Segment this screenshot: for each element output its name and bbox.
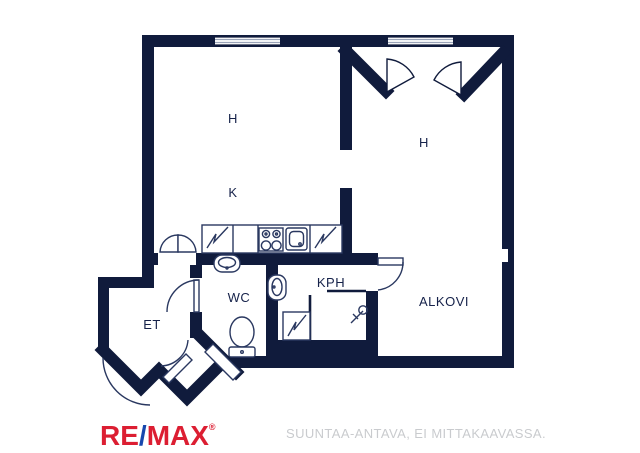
wall-entrance-zigzag [103, 350, 222, 398]
room-label-alkovi: ALKOVI [419, 294, 469, 309]
floor-plan-drawing: H K H WC KPH ALKOVI ET RE/MAX® SUUNTAA-A… [0, 0, 640, 453]
door-swing-arc-icon [167, 280, 199, 312]
wall-bottom [222, 356, 514, 368]
kph-sink-icon [268, 275, 286, 300]
toilet-icon [229, 317, 255, 357]
shower-drain-icon [351, 306, 367, 323]
wall-left [142, 35, 154, 280]
room-label-kph: KPH [317, 275, 345, 290]
logo-max: MAX [147, 420, 210, 451]
disclaimer-text: SUUNTAA-ANTAVA, EI MITTAKAAVASSA. [286, 426, 546, 441]
room-label-et: ET [143, 317, 161, 332]
logo-re: RE [100, 420, 139, 451]
corner-door-fan-icon [387, 59, 414, 92]
wall-niche [502, 249, 508, 262]
kitchen-counter [202, 225, 342, 253]
room-label-h-right: H [419, 135, 429, 150]
wall-top [142, 35, 514, 47]
wall-k-et-stub [142, 253, 158, 265]
bifold-door-icon [160, 235, 196, 252]
room-label-k: K [228, 185, 237, 200]
registered-mark-icon: ® [209, 422, 216, 432]
room-labels: H K H WC KPH ALKOVI ET [143, 111, 469, 332]
room-label-h-left: H [228, 111, 238, 126]
corner-door-fan-icon [434, 62, 461, 95]
wall-left-lower [98, 277, 109, 352]
wall-right [502, 35, 514, 368]
window-icon [388, 35, 453, 47]
wc-fixtures [214, 255, 255, 357]
window-icon [215, 35, 280, 47]
floor-plan-page: H K H WC KPH ALKOVI ET RE/MAX® SUUNTAA-A… [0, 0, 640, 453]
remax-logo: RE/MAX® [100, 420, 216, 451]
footer: RE/MAX® SUUNTAA-ANTAVA, EI MITTAKAAVASSA… [100, 420, 546, 451]
wall-diagonal-right [464, 53, 503, 94]
room-label-wc: WC [228, 290, 251, 305]
door-swing-arc-icon [378, 258, 403, 290]
wc-sink-icon [214, 255, 240, 272]
